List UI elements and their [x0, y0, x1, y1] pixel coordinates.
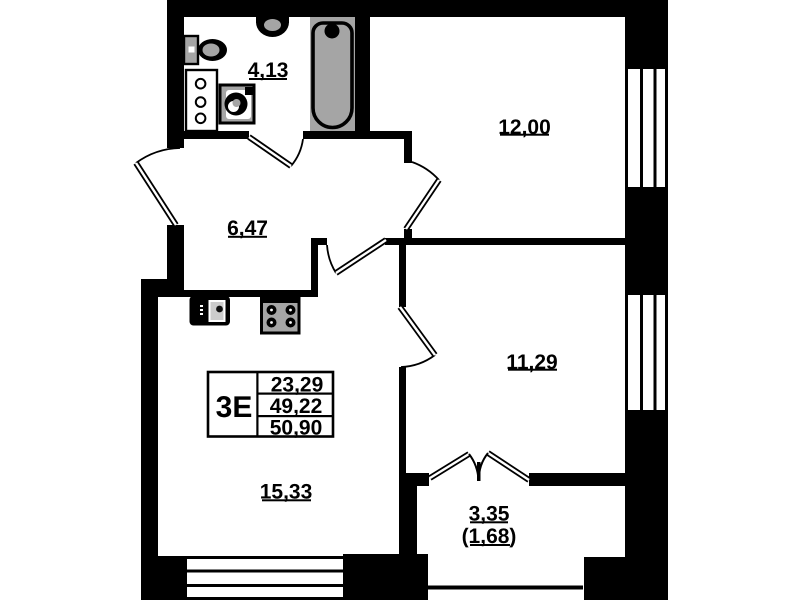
svg-text:23,29: 23,29 — [271, 374, 324, 397]
svg-text:49,22: 49,22 — [270, 395, 323, 418]
svg-text:3Е: 3Е — [216, 391, 253, 424]
svg-text:50,90: 50,90 — [270, 417, 323, 440]
